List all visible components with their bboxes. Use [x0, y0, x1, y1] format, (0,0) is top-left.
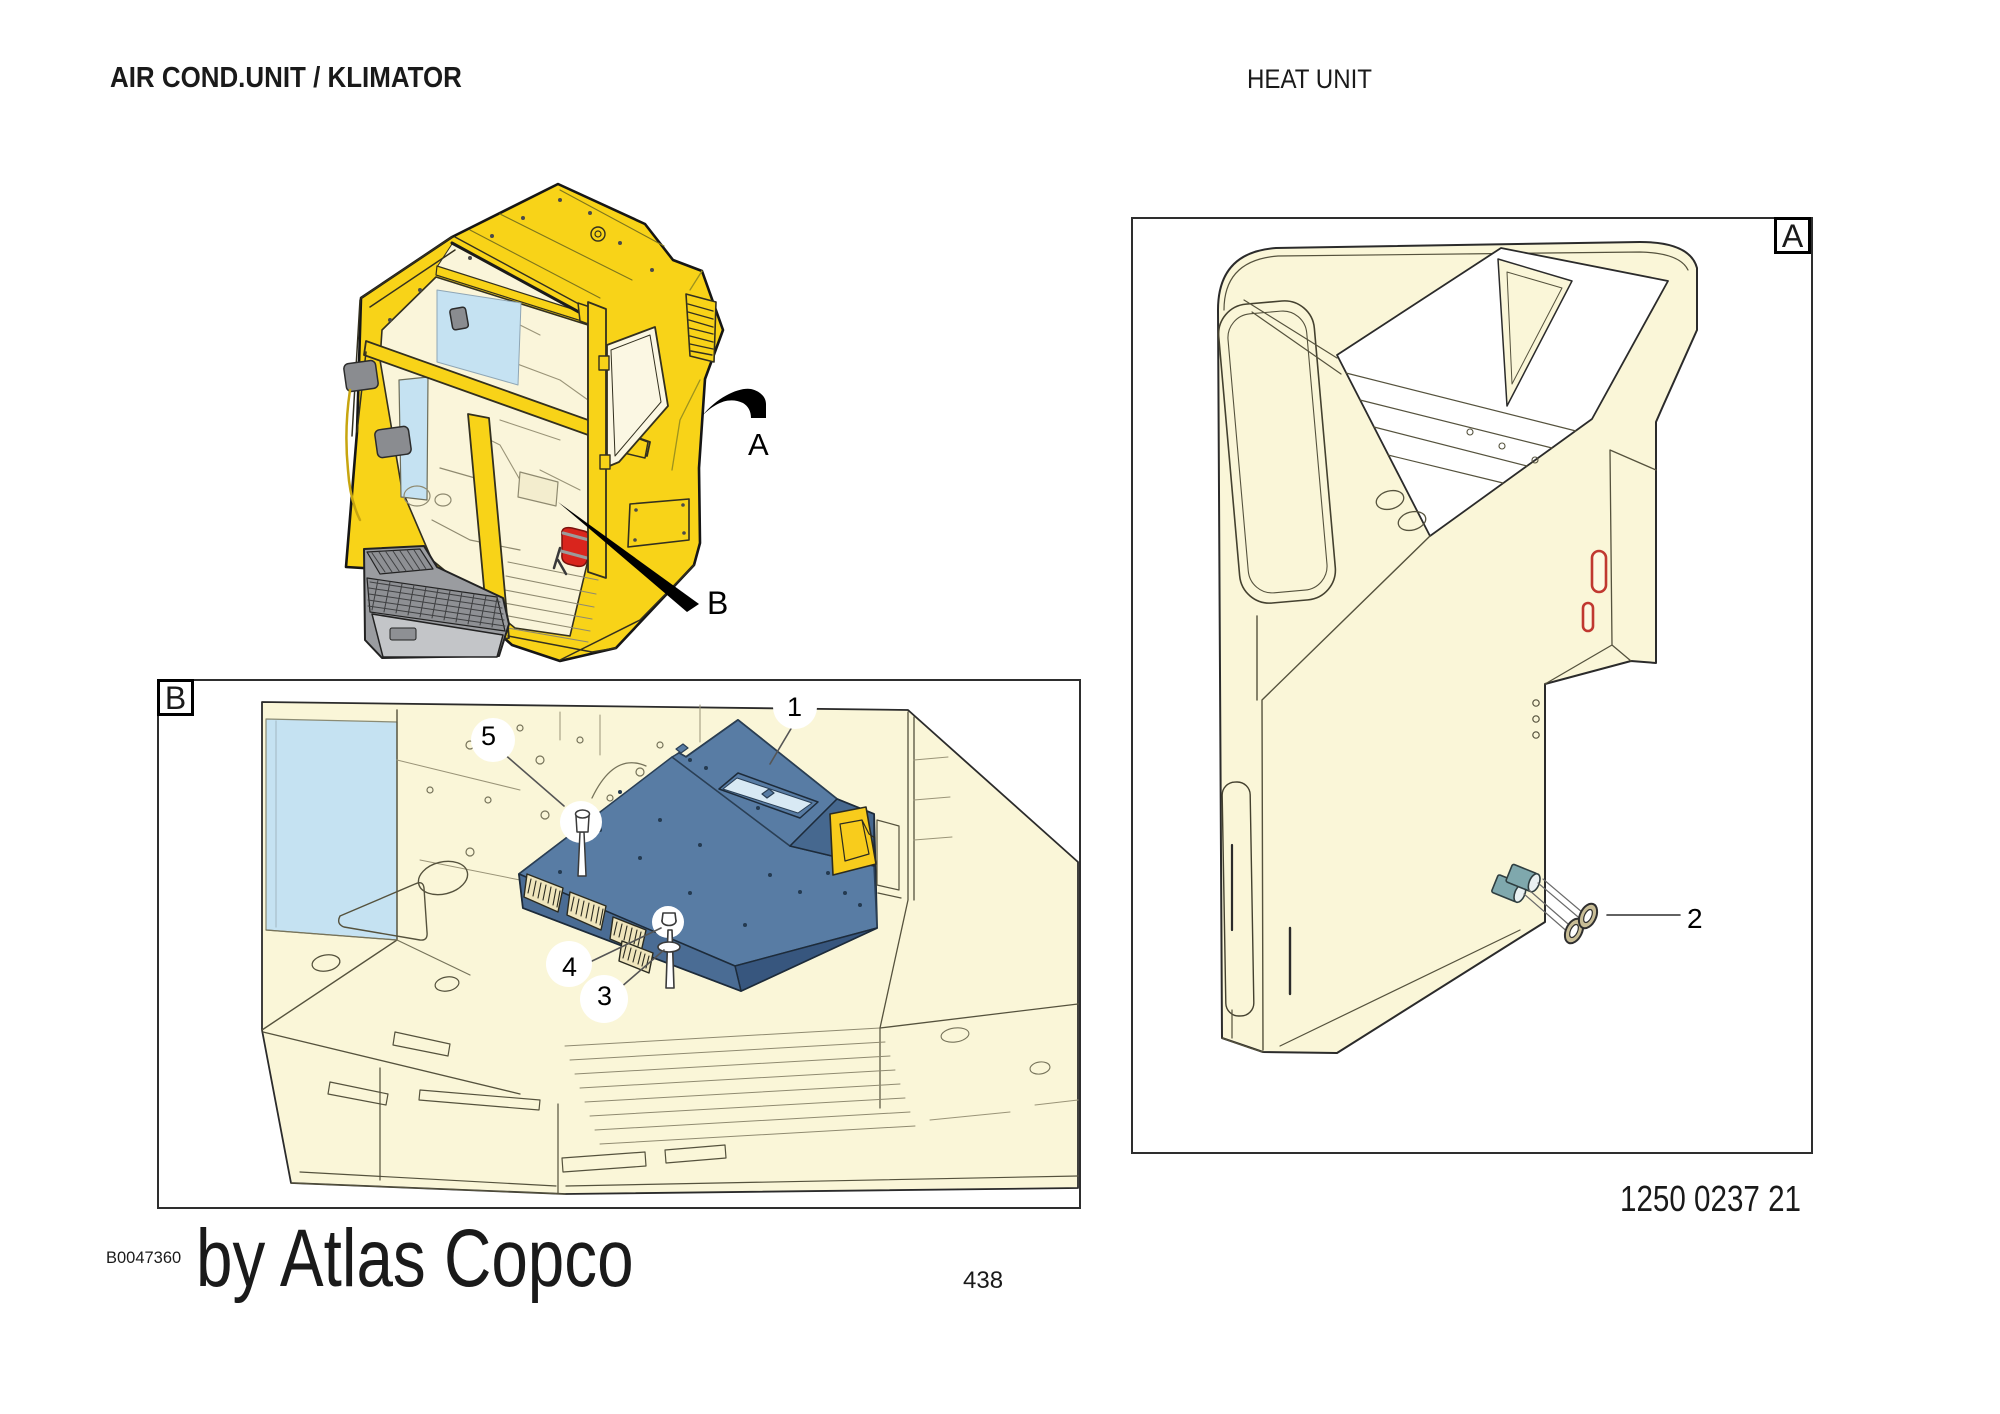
svg-text:4: 4	[562, 952, 577, 982]
svg-text:1: 1	[787, 692, 802, 722]
svg-text:3: 3	[597, 981, 612, 1011]
svg-text:2: 2	[1687, 903, 1703, 934]
svg-text:A: A	[748, 427, 769, 462]
svg-text:5: 5	[481, 721, 496, 751]
svg-text:B: B	[707, 585, 728, 621]
